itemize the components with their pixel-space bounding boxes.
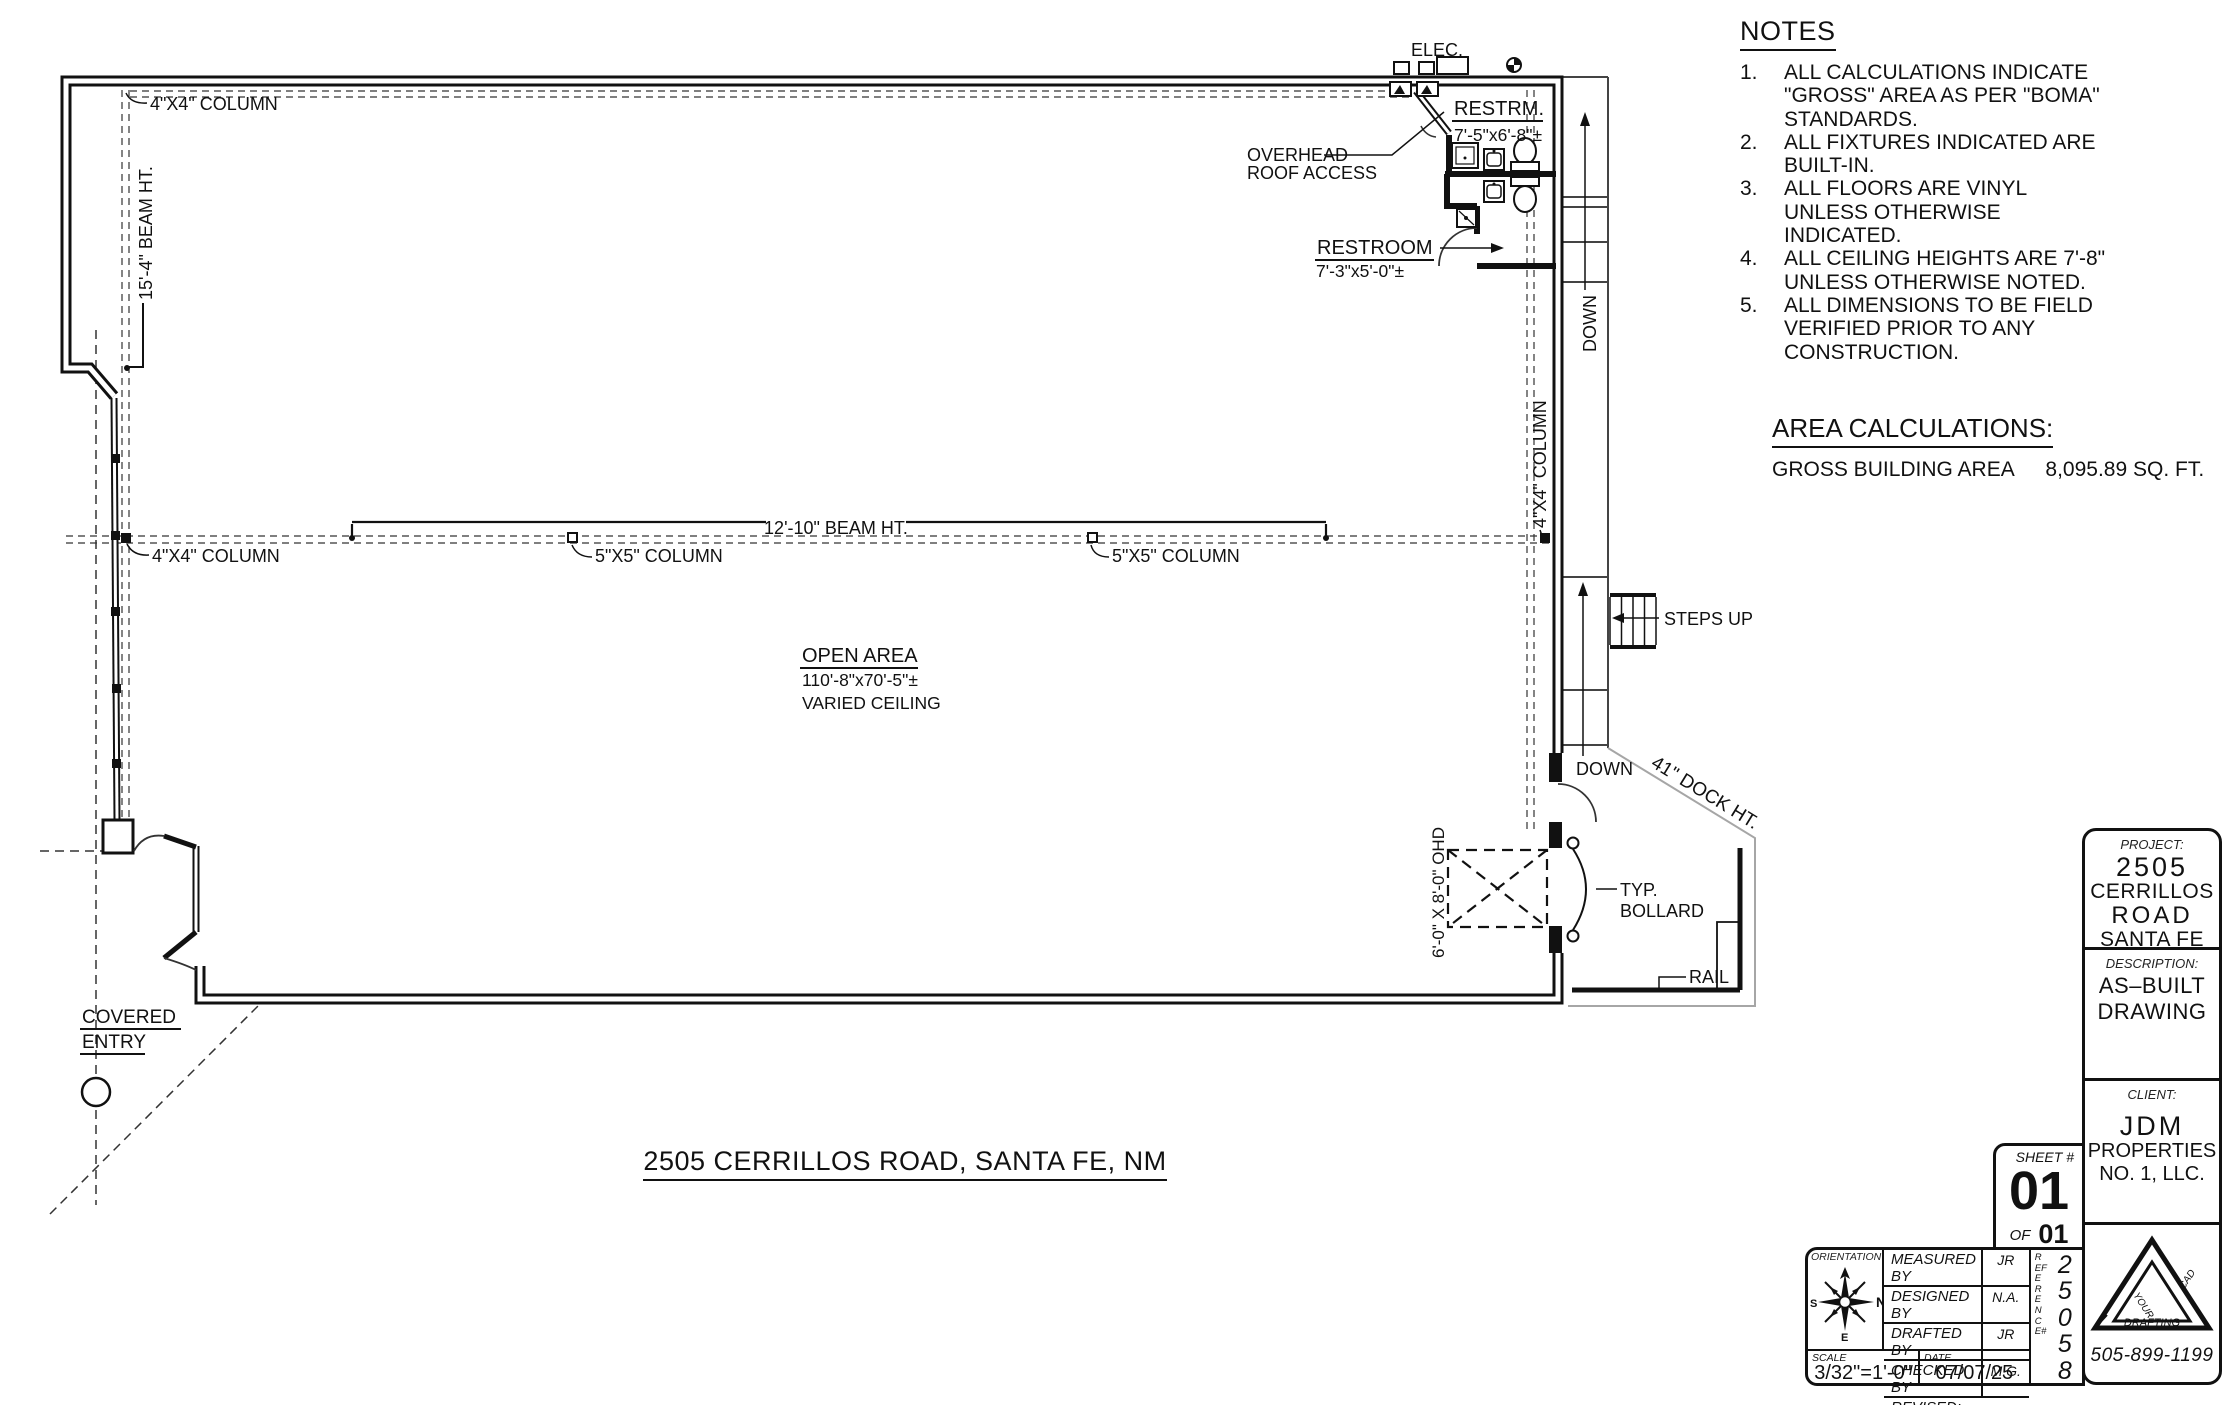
- label-restroom-dims: 7'-3"x5'-0"±: [1316, 261, 1404, 281]
- notes-panel: NOTES 1. ALL CALCULATIONS INDICATE "GROS…: [1740, 16, 2140, 364]
- label-elec: ELEC.: [1411, 40, 1463, 60]
- description-section: DESCRIPTION: AS–BUILT DRAWING: [2085, 950, 2219, 1081]
- client-label: CLIENT:: [2128, 1087, 2177, 1102]
- project-line: CERRILLOS: [2085, 880, 2219, 904]
- overhead-door: [1448, 850, 1547, 927]
- credits-box: ORIENTATION N S E: [1805, 1247, 2085, 1386]
- client-line: PROPERTIES: [2085, 1140, 2219, 1163]
- scale-cell: SCALE 3/32"=1'-0": [1808, 1351, 1920, 1385]
- date-cell: DATE 07/07/25: [1920, 1351, 2029, 1385]
- logo-word-cad: CAD: [2177, 1268, 2198, 1292]
- client-line: NO. 1, LLC.: [2085, 1163, 2219, 1186]
- reference-label: REFERENCE#: [2031, 1250, 2048, 1383]
- sheet-number: 01: [1996, 1165, 2082, 1217]
- client-line: JDM: [2085, 1112, 2219, 1140]
- label-restrm-dims: 7'-5"x6'-8"±: [1454, 125, 1542, 145]
- project-section: PROJECT: 2505 CERRILLOS ROAD SANTA FE: [2085, 831, 2219, 950]
- project-label: PROJECT:: [2120, 837, 2183, 852]
- credits-left: ORIENTATION N S E: [1808, 1250, 2031, 1383]
- sheet-number-box: SHEET # 01 OF 01: [1993, 1143, 2085, 1250]
- project-line: SANTA FE: [2085, 928, 2219, 952]
- label-beam-12-10: 12'-10" BEAM HT.: [764, 518, 908, 538]
- orientation-cell: ORIENTATION N S E: [1808, 1250, 1884, 1349]
- reference-number-cell: REFERENCE# 2 5 0 5 8: [2031, 1250, 2082, 1383]
- label-typ-bollard-1: TYP.: [1620, 880, 1658, 900]
- floor-plan-drawing: 4"X4" COLUMN 15'-4" BEAM HT. ELEC. RESTR…: [0, 0, 1770, 1405]
- label-steps-up: STEPS UP: [1664, 609, 1753, 629]
- entry-column-circle: [82, 1078, 110, 1106]
- plan-title: 2505 CERRILLOS ROAD, SANTA FE, NM: [555, 1146, 1255, 1181]
- credit-rows: MEASURED BY JR DESIGNED BY N.A. DRAFTED …: [1884, 1250, 2029, 1349]
- phone-number: 505-899-1199: [2091, 1345, 2214, 1367]
- restroom-door-arc: [1439, 228, 1477, 266]
- logo-section: YOUR CAD DRAFTING 505-899-1199: [2085, 1225, 2219, 1382]
- down-arrows: [1578, 112, 1590, 756]
- note-item: 5. ALL DIMENSIONS TO BE FIELD VERIFIED P…: [1740, 294, 2140, 364]
- column-grid-lines: [66, 90, 1553, 832]
- label-open-area-note: VARIED CEILING: [802, 693, 941, 713]
- project-line: ROAD: [2085, 904, 2219, 928]
- label-col-5x5-a: 5"X5" COLUMN: [595, 546, 723, 566]
- of-label: OF: [2010, 1227, 2031, 1244]
- client-section: CLIENT: JDM PROPERTIES NO. 1, LLC.: [2085, 1081, 2219, 1225]
- gross-area-row: GROSS BUILDING AREA 8,095.89 SQ. FT.: [1772, 458, 2212, 482]
- note-item: 4. ALL CEILING HEIGHTS ARE 7'-8" UNLESS …: [1740, 247, 2140, 294]
- label-typ-bollard-2: BOLLARD: [1620, 901, 1704, 921]
- notes-heading: NOTES: [1740, 16, 2140, 51]
- label-beam-15-4: 15'-4" BEAM HT.: [136, 166, 156, 300]
- covered-entry-outline: [40, 330, 262, 1214]
- credit-row: MEASURED BY JR: [1884, 1250, 2029, 1287]
- description-label: DESCRIPTION:: [2106, 956, 2198, 971]
- gross-area-value: 8,095.89 SQ. FT.: [2045, 458, 2204, 481]
- orientation-label: ORIENTATION: [1808, 1250, 1882, 1263]
- plan-title-text: 2505 CERRILLOS ROAD, SANTA FE, NM: [643, 1146, 1166, 1181]
- label-ohd: 6'-0" X 8'-0" OHD: [1429, 827, 1448, 958]
- reference-digits: 2 5 0 5 8: [2048, 1250, 2082, 1383]
- compass-s: S: [1810, 1298, 1817, 1310]
- label-col-4x4-left: 4"X4" COLUMN: [152, 546, 280, 566]
- gross-area-label: GROSS BUILDING AREA: [1772, 458, 2014, 481]
- drawing-sheet: 4"X4" COLUMN 15'-4" BEAM HT. ELEC. RESTR…: [0, 0, 2240, 1405]
- titleblock-right-column: PROJECT: 2505 CERRILLOS ROAD SANTA FE DE…: [2082, 828, 2222, 1385]
- of-number: 01: [2038, 1219, 2068, 1249]
- area-calc-heading: AREA CALCULATIONS:: [1772, 413, 2212, 448]
- description-line: DRAWING: [2085, 999, 2219, 1025]
- credits-bottom: SCALE 3/32"=1'-0" DATE 07/07/25: [1808, 1351, 2029, 1385]
- restroom-fixtures: [1452, 138, 1539, 227]
- cad-company-logo: YOUR CAD DRAFTING: [2089, 1235, 2215, 1337]
- label-col-4x4-top: 4"X4" COLUMN: [150, 94, 278, 114]
- label-open-area-dims: 110'-8"x70'-5"±: [802, 670, 918, 690]
- credits-top: ORIENTATION N S E: [1808, 1250, 2029, 1351]
- credit-row: DESIGNED BY N.A.: [1884, 1287, 2029, 1324]
- bollards: [1568, 838, 1618, 942]
- revised-row: REVISED:: [1884, 1398, 2029, 1405]
- roof-drain-marker: [1507, 58, 1521, 72]
- label-overhead-1: OVERHEAD: [1247, 145, 1348, 165]
- note-item: 2. ALL FIXTURES INDICATED ARE BUILT-IN.: [1740, 131, 2140, 178]
- area-calculations-panel: AREA CALCULATIONS: GROSS BUILDING AREA 8…: [1772, 413, 2212, 482]
- project-line: 2505: [2085, 854, 2219, 880]
- storefront-glazing: [111, 398, 121, 820]
- steps-symbol: [1610, 595, 1659, 647]
- description-line: AS–BUILT: [2085, 973, 2219, 999]
- label-open-area: OPEN AREA: [802, 645, 918, 667]
- label-restroom: RESTROOM: [1317, 237, 1433, 259]
- label-rail: RAIL: [1689, 967, 1729, 987]
- label-overhead-2: ROOF ACCESS: [1247, 163, 1377, 183]
- label-down-lower: DOWN: [1576, 759, 1633, 779]
- label-col-5x5-b: 5"X5" COLUMN: [1112, 546, 1240, 566]
- label-entry: ENTRY: [82, 1032, 146, 1053]
- man-door-arc: [1558, 784, 1596, 822]
- note-item: 1. ALL CALCULATIONS INDICATE "GROSS" ARE…: [1740, 61, 2140, 131]
- exterior-walls: [66, 81, 1558, 999]
- label-covered: COVERED: [82, 1007, 176, 1028]
- logo-word-drafting: DRAFTING: [2124, 1317, 2181, 1329]
- compass-e: E: [1841, 1332, 1848, 1343]
- compass-n: N: [1876, 1294, 1882, 1310]
- note-item: 3. ALL FLOORS ARE VINYL UNLESS OTHERWISE…: [1740, 177, 2140, 247]
- entry-doors: [103, 820, 196, 970]
- door-jambs: [1549, 753, 1562, 953]
- label-restrm: RESTRM.: [1454, 98, 1544, 120]
- label-col-4x4-right: 4"X4" COLUMN: [1530, 400, 1550, 528]
- label-dock-ht: 41" DOCK HT.: [1647, 752, 1762, 834]
- sheet-of-row: OF 01: [1996, 1219, 2082, 1250]
- label-down-upper: DOWN: [1580, 295, 1600, 352]
- compass-rose-icon: N S E: [1808, 1263, 1882, 1343]
